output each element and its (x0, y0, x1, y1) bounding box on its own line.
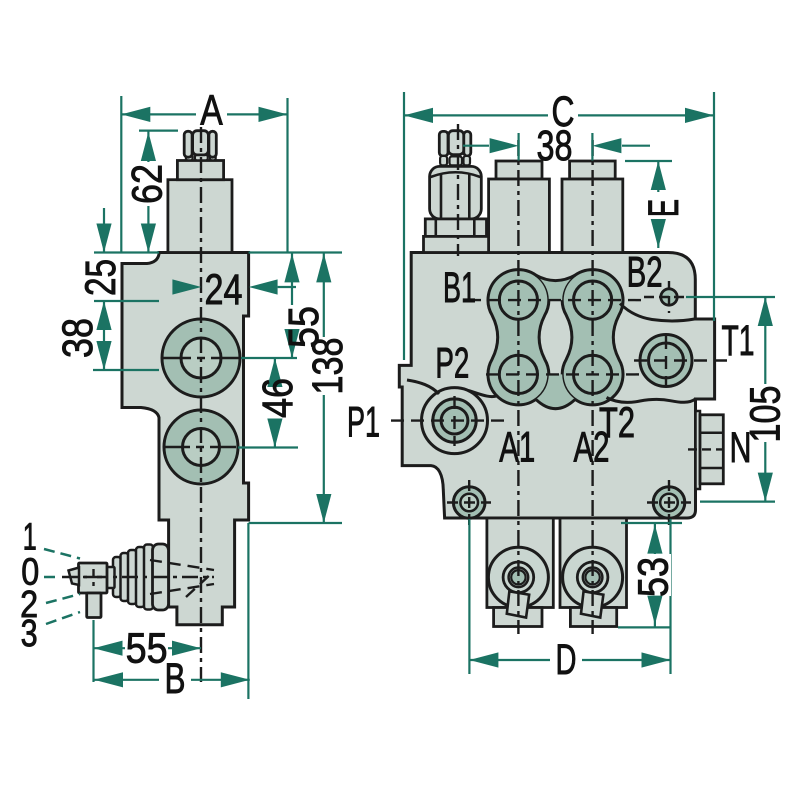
svg-text:105: 105 (741, 386, 789, 443)
svg-text:T1: T1 (722, 317, 755, 365)
svg-text:A1: A1 (499, 424, 535, 472)
svg-text:24: 24 (205, 266, 243, 314)
svg-text:B1: B1 (443, 264, 476, 312)
svg-text:P1: P1 (347, 399, 380, 447)
svg-text:53: 53 (630, 557, 678, 597)
svg-text:T2: T2 (599, 399, 635, 447)
svg-text:3: 3 (21, 613, 38, 655)
svg-text:38: 38 (537, 122, 573, 170)
svg-text:38: 38 (54, 318, 102, 358)
svg-text:E: E (640, 199, 688, 217)
svg-text:25: 25 (77, 259, 125, 296)
svg-text:B2: B2 (627, 249, 663, 297)
svg-text:P2: P2 (435, 340, 469, 388)
svg-text:D: D (556, 636, 577, 684)
svg-text:138: 138 (304, 338, 352, 395)
svg-text:A: A (200, 87, 223, 135)
svg-text:62: 62 (124, 164, 172, 204)
svg-text:B: B (165, 655, 186, 703)
svg-text:55: 55 (126, 625, 168, 673)
svg-text:46: 46 (254, 378, 302, 418)
